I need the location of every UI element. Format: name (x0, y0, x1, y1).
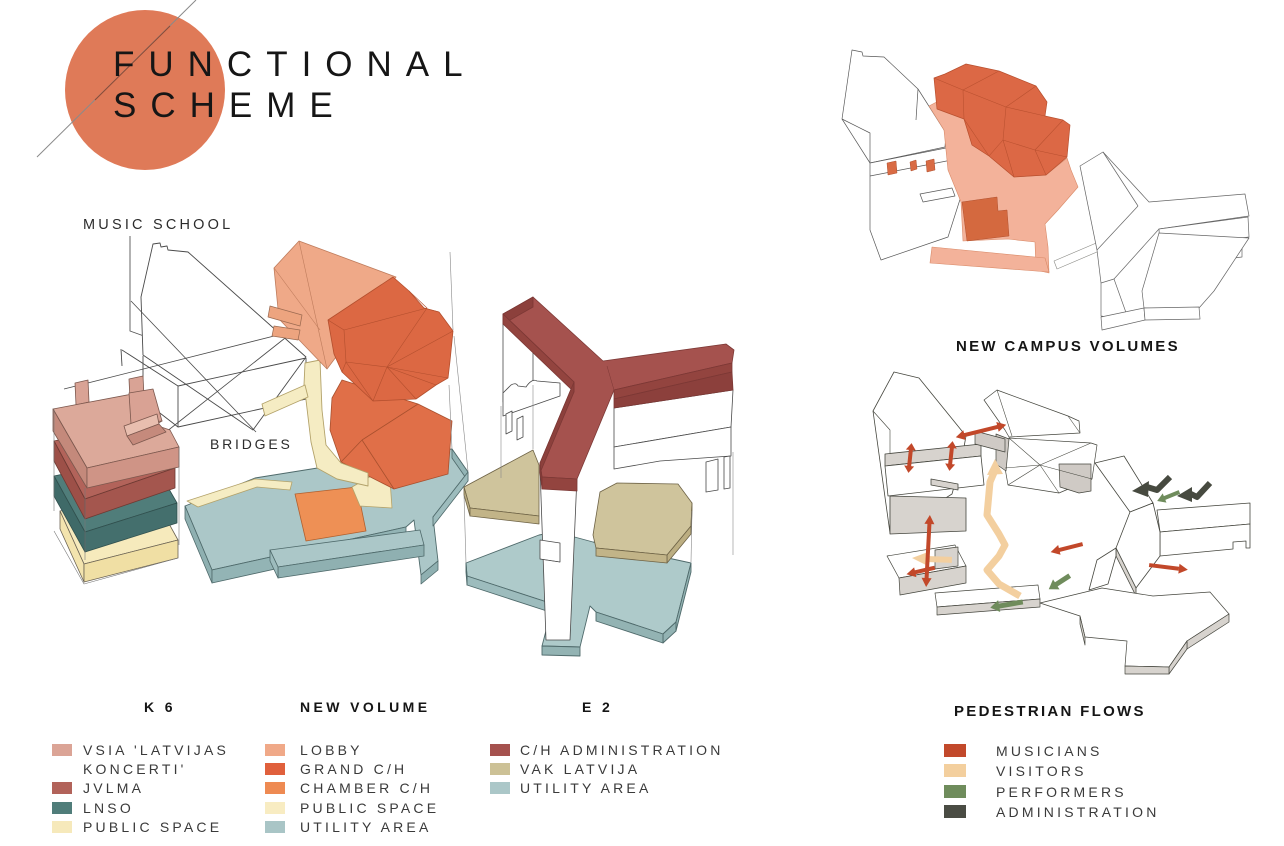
svg-text:PEDESTRIAN FLOWS: PEDESTRIAN FLOWS (954, 703, 1146, 720)
svg-text:VSIA 'LATVIJAS: VSIA 'LATVIJAS (83, 742, 229, 758)
svg-text:PUBLIC SPACE: PUBLIC SPACE (83, 819, 222, 835)
svg-text:ADMINISTRATION: ADMINISTRATION (996, 804, 1160, 820)
svg-text:LNSO: LNSO (83, 800, 134, 816)
svg-text:UTILITY AREA: UTILITY AREA (520, 780, 652, 796)
svg-text:NEW VOLUME: NEW VOLUME (300, 699, 430, 715)
svg-text:KONCERTI': KONCERTI' (83, 761, 187, 777)
svg-text:PERFORMERS: PERFORMERS (996, 784, 1127, 800)
svg-text:LOBBY: LOBBY (300, 742, 363, 758)
svg-text:SCHEME: SCHEME (113, 86, 347, 125)
svg-text:UTILITY AREA: UTILITY AREA (300, 819, 432, 835)
svg-text:PUBLIC SPACE: PUBLIC SPACE (300, 800, 439, 816)
svg-text:K 6: K 6 (144, 699, 176, 715)
svg-text:MUSICIANS: MUSICIANS (996, 743, 1103, 759)
svg-text:C/H ADMINISTRATION: C/H ADMINISTRATION (520, 742, 724, 758)
svg-text:VAK LATVIJA: VAK LATVIJA (520, 761, 640, 777)
svg-text:MUSIC SCHOOL: MUSIC SCHOOL (83, 217, 233, 233)
svg-text:NEW CAMPUS VOLUMES: NEW CAMPUS VOLUMES (956, 338, 1180, 355)
svg-text:FUNCTIONAL: FUNCTIONAL (113, 45, 477, 84)
svg-text:VISITORS: VISITORS (996, 763, 1087, 779)
svg-text:GRAND C/H: GRAND C/H (300, 761, 407, 777)
svg-text:JVLMA: JVLMA (83, 780, 144, 796)
svg-text:BRIDGES: BRIDGES (210, 436, 293, 452)
svg-text:E 2: E 2 (582, 699, 613, 715)
svg-text:CHAMBER C/H: CHAMBER C/H (300, 780, 433, 796)
